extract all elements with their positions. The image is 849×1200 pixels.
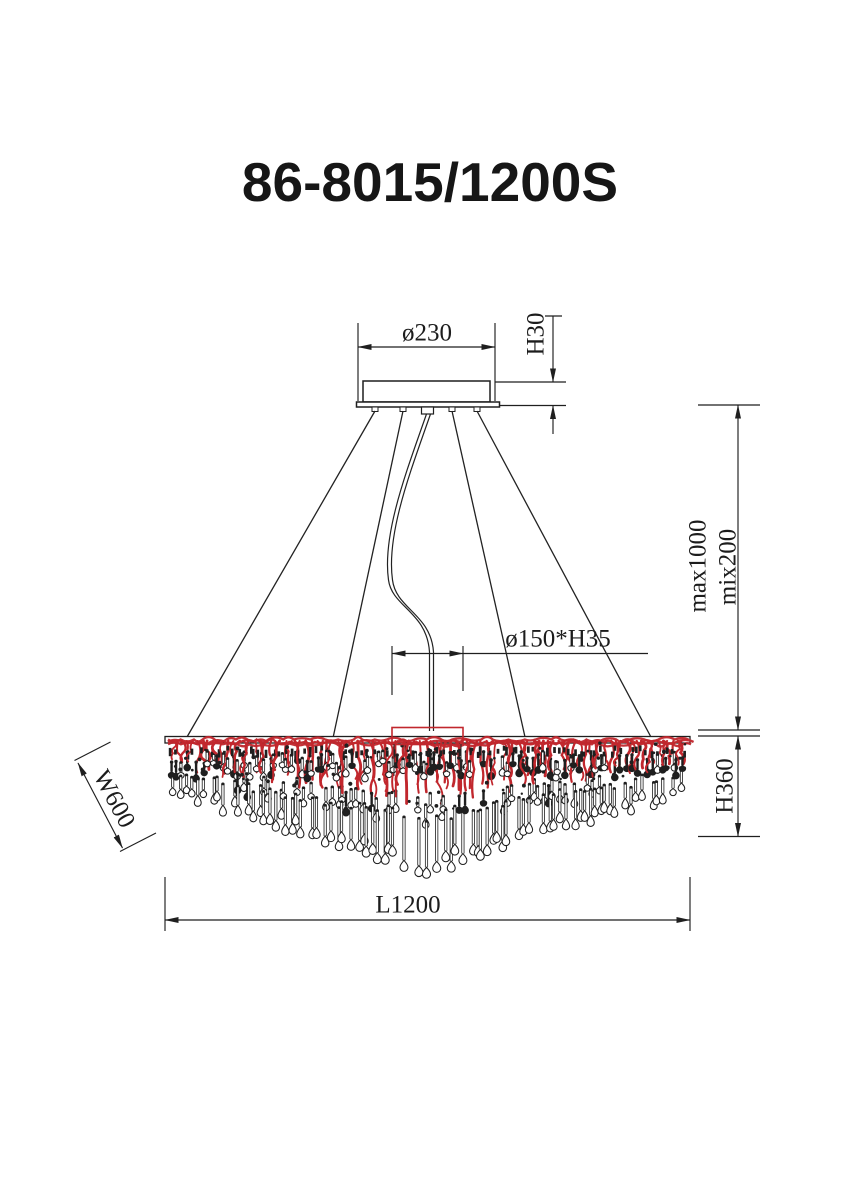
ceiling-canopy — [357, 381, 500, 414]
crystal-fringe — [168, 737, 694, 878]
dim-label-body-height: H360 — [713, 758, 738, 814]
power-cord — [387, 414, 429, 731]
dim-label-suspension-max: max1000 — [686, 519, 711, 612]
dim-label-suspension-min: mix200 — [716, 529, 741, 605]
power-cord — [391, 414, 433, 731]
dim-label-body-length: L1200 — [375, 893, 440, 918]
suspension-wires — [187, 411, 652, 739]
dim-center-plate — [392, 646, 648, 695]
dim-label-center-plate: ø150*H35 — [505, 627, 611, 652]
chandelier-body — [165, 728, 694, 879]
dim-label-canopy-height: H30 — [524, 312, 549, 355]
dimension-lines — [75, 316, 761, 931]
product-code-title: 86-8015/1200S — [242, 150, 618, 214]
technical-drawing-page: 86-8015/1200S ø230 H30 max1000 mix200 ø1… — [0, 0, 849, 1200]
dim-label-canopy-diameter: ø230 — [402, 321, 452, 346]
